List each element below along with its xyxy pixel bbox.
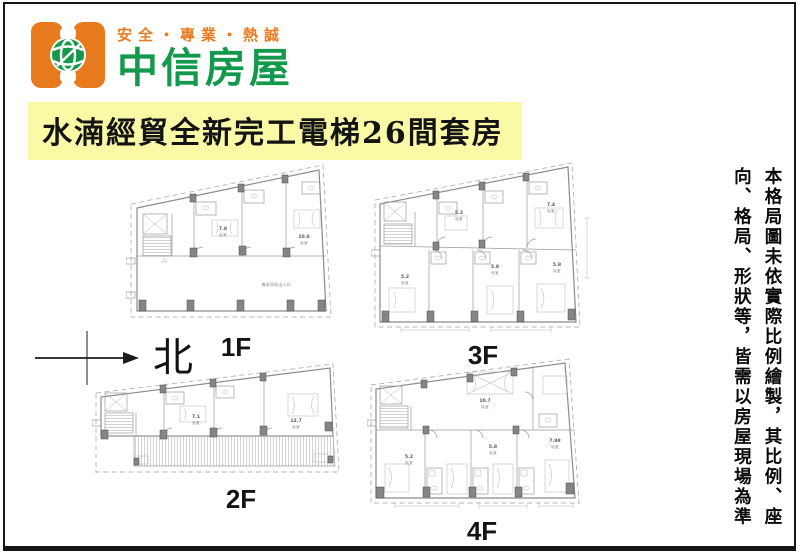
elevator-icon: [143, 214, 167, 234]
disclaimer-line-2: 向、格局、形狀等，皆需以房屋現場為準: [726, 167, 757, 549]
room-area-label: 7.1: [192, 414, 200, 420]
bed-furniture: [385, 372, 569, 494]
room-area-label: 5.2: [401, 274, 409, 280]
brand-name: 中信房屋: [117, 46, 293, 91]
room-area-label: 7.8: [219, 226, 227, 232]
room-type-label: 臥室: [405, 460, 413, 465]
brand-logo-icon: [30, 21, 106, 91]
structural-columns: [382, 173, 575, 322]
brand-logo: 安全・專業・熱誠 中信房屋: [30, 21, 293, 91]
floor-plan-1f-drawing: 7.8 臥室 10.0 臥室 機車停車出入口: [126, 158, 346, 326]
floor-label-4f: 4F: [367, 516, 597, 547]
room-area-label: 5.8: [553, 262, 561, 268]
building-outline: [380, 167, 576, 322]
floor-label-2f: 2F: [136, 484, 346, 515]
room-type-label: 臥室: [489, 450, 497, 455]
interior-walls: [380, 178, 576, 322]
elevator-icon: [380, 386, 402, 404]
north-arrow-icon: [33, 327, 145, 389]
brand-tagline: 安全・專業・熱誠: [117, 24, 293, 45]
room-type-label: 臥室: [553, 268, 561, 273]
room-area-label: 7.98: [549, 438, 560, 444]
north-compass: 北: [33, 327, 193, 389]
room-type-label: 臥室: [192, 420, 200, 425]
room-area-label: 5.8: [491, 264, 499, 270]
room-area-label: 7.4: [547, 202, 555, 208]
staircase-icon: [384, 224, 412, 244]
room-type-label: 臥室: [219, 232, 227, 237]
staircase-icon: [105, 413, 133, 433]
room-area-label: 10.7: [479, 398, 490, 404]
room-area-label: 12.7: [290, 418, 301, 424]
north-label: 北: [153, 338, 193, 378]
garage-entry-note: 機車停車出入口: [261, 281, 290, 288]
bathroom-fixtures: [431, 182, 547, 264]
floor-plan-4f-drawing: 10.7 臥室 5.8 臥室 7.98 臥室 5.2 臥室: [367, 356, 597, 510]
room-area-label: 5.2: [455, 210, 463, 216]
room-type-label: 臥室: [547, 208, 555, 213]
disclaimer-line-1: 本格局圖未依實際比例繪製，其比例、座: [756, 167, 787, 549]
room-type-label: 臥室: [491, 270, 499, 275]
terrace-hatch: [134, 436, 335, 466]
floor-plan-4f: 10.7 臥室 5.8 臥室 7.98 臥室 5.2 臥室 4F: [367, 356, 597, 547]
listing-title: 水湳經貿全新完工電梯26間套房: [42, 116, 504, 151]
room-area-label: 10.0: [298, 234, 309, 240]
staircase-icon: [380, 406, 408, 428]
lot-boundary: [375, 163, 580, 327]
room-type-label: 臥室: [300, 240, 308, 245]
listing-title-banner: 水湳經貿全新完工電梯26間套房: [28, 102, 522, 160]
room-area-label: 5.2: [405, 454, 413, 460]
room-type-label: 臥室: [401, 280, 409, 285]
floor-plan-3f-drawing: 5.2 臥室 7.4 臥室 5.8 臥室 5.8 臥室 5.2 臥室: [371, 158, 595, 334]
lot-boundary: [371, 359, 579, 503]
room-type-label: 臥室: [292, 424, 300, 429]
elevator-icon: [384, 202, 406, 221]
floor-plan-3f: 5.2 臥室 7.4 臥室 5.8 臥室 5.8 臥室 5.2 臥室 3F: [371, 158, 595, 371]
room-type-label: 臥室: [551, 444, 559, 449]
bed-furniture: [389, 208, 565, 314]
room-type-label: 臥室: [455, 216, 463, 221]
room-type-label: 臥室: [481, 404, 489, 409]
annotation-box: [92, 420, 101, 426]
staircase-icon: [143, 236, 171, 256]
bed-furniture: [212, 210, 320, 236]
room-area-label: 5.8: [489, 444, 497, 450]
globe-icon: [50, 37, 86, 73]
annotation-boxes: [126, 258, 167, 298]
disclaimer-text: 本格局圖未依實際比例繪製，其比例、座 向、格局、形狀等，皆需以房屋現場為準: [726, 167, 787, 549]
